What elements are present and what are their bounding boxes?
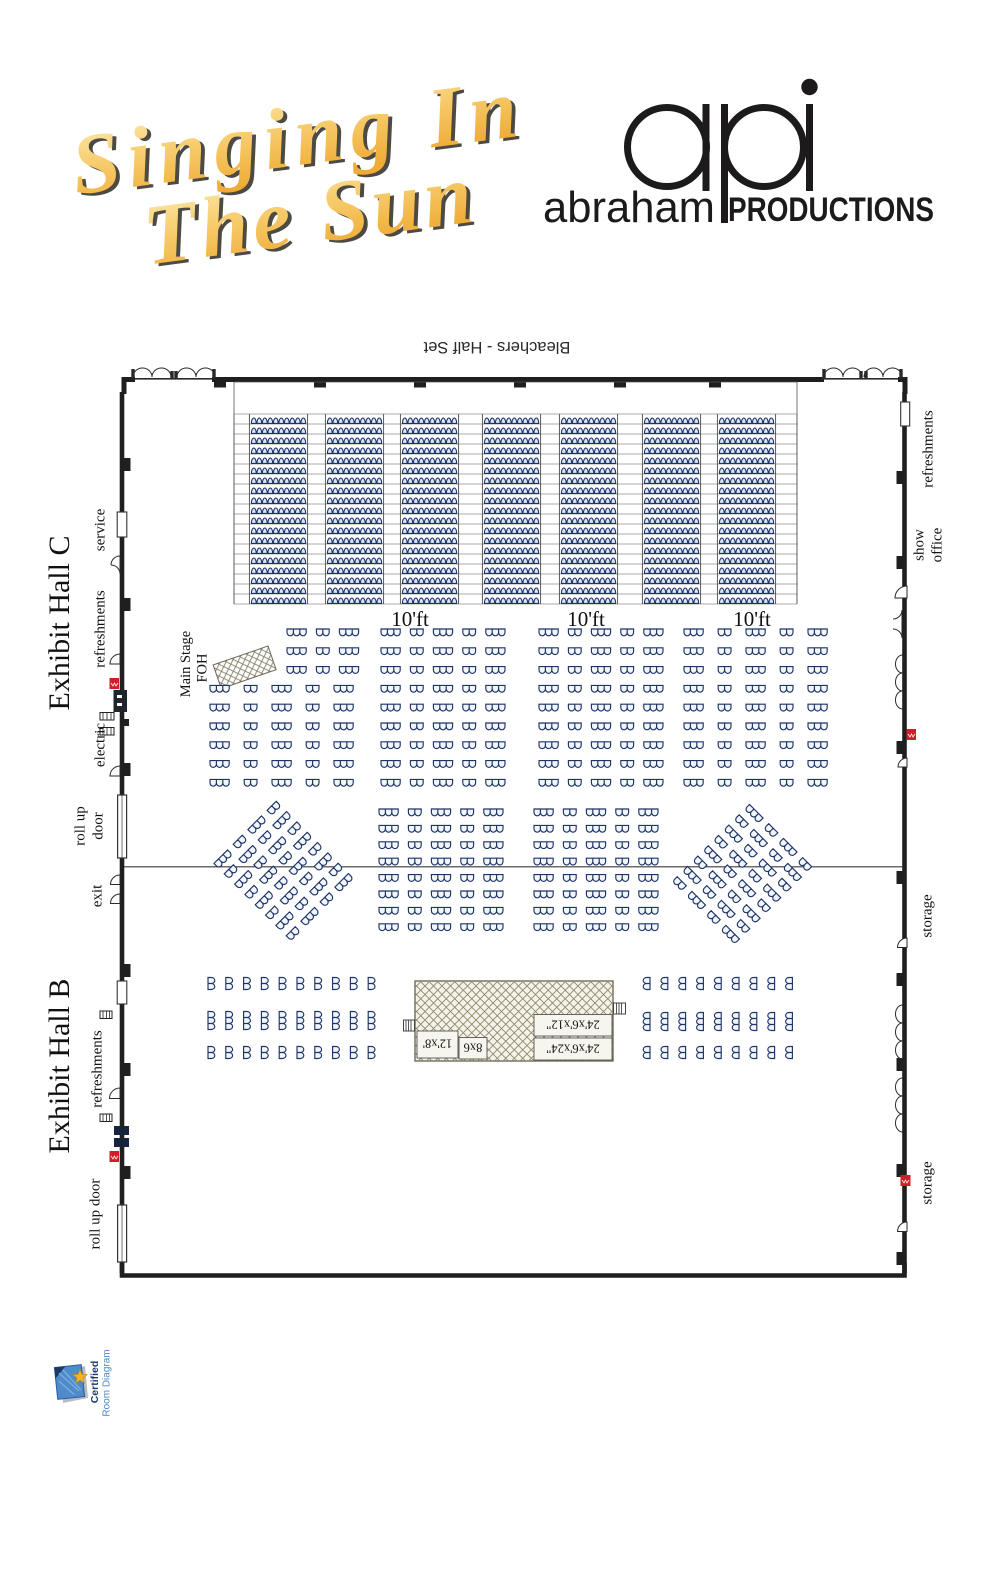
svg-text:office: office bbox=[929, 527, 945, 562]
svg-text:Exhibit Hall C: Exhibit Hall C bbox=[43, 536, 76, 711]
svg-text:PRODUCTIONS: PRODUCTIONS bbox=[728, 191, 934, 229]
svg-text:storage: storage bbox=[919, 894, 935, 938]
svg-text:24'x6'x24": 24'x6'x24" bbox=[546, 1042, 599, 1056]
svg-text:roll up door: roll up door bbox=[87, 1179, 103, 1250]
svg-text:12'x8': 12'x8' bbox=[423, 1037, 453, 1051]
svg-text:10'ft: 10'ft bbox=[567, 607, 605, 631]
svg-text:show: show bbox=[911, 529, 927, 561]
svg-text:refreshments: refreshments bbox=[89, 1030, 105, 1108]
svg-text:Room Diagram: Room Diagram bbox=[102, 1349, 113, 1416]
svg-text:roll up: roll up bbox=[72, 806, 88, 846]
svg-text:Bleachers - Half Set: Bleachers - Half Set bbox=[423, 338, 570, 356]
svg-text:storage: storage bbox=[919, 1161, 935, 1205]
svg-text:service: service bbox=[92, 508, 108, 551]
svg-text:refreshments: refreshments bbox=[92, 590, 108, 668]
svg-text:exit: exit bbox=[89, 884, 105, 907]
svg-text:abraham: abraham bbox=[543, 183, 715, 232]
svg-text:Exhibit Hall B: Exhibit Hall B bbox=[43, 979, 76, 1154]
svg-text:Certified: Certified bbox=[89, 1361, 101, 1404]
svg-text:8x6: 8x6 bbox=[464, 1041, 483, 1055]
svg-text:24'x6'x12": 24'x6'x12" bbox=[546, 1018, 599, 1032]
svg-text:FOH: FOH bbox=[195, 653, 211, 683]
svg-text:10'ft: 10'ft bbox=[733, 607, 771, 631]
svg-text:refreshments: refreshments bbox=[920, 410, 936, 488]
svg-text:10'ft: 10'ft bbox=[391, 607, 429, 631]
svg-text:electric: electric bbox=[92, 723, 108, 767]
svg-text:door: door bbox=[90, 812, 106, 840]
svg-text:Main Stage: Main Stage bbox=[178, 631, 194, 697]
